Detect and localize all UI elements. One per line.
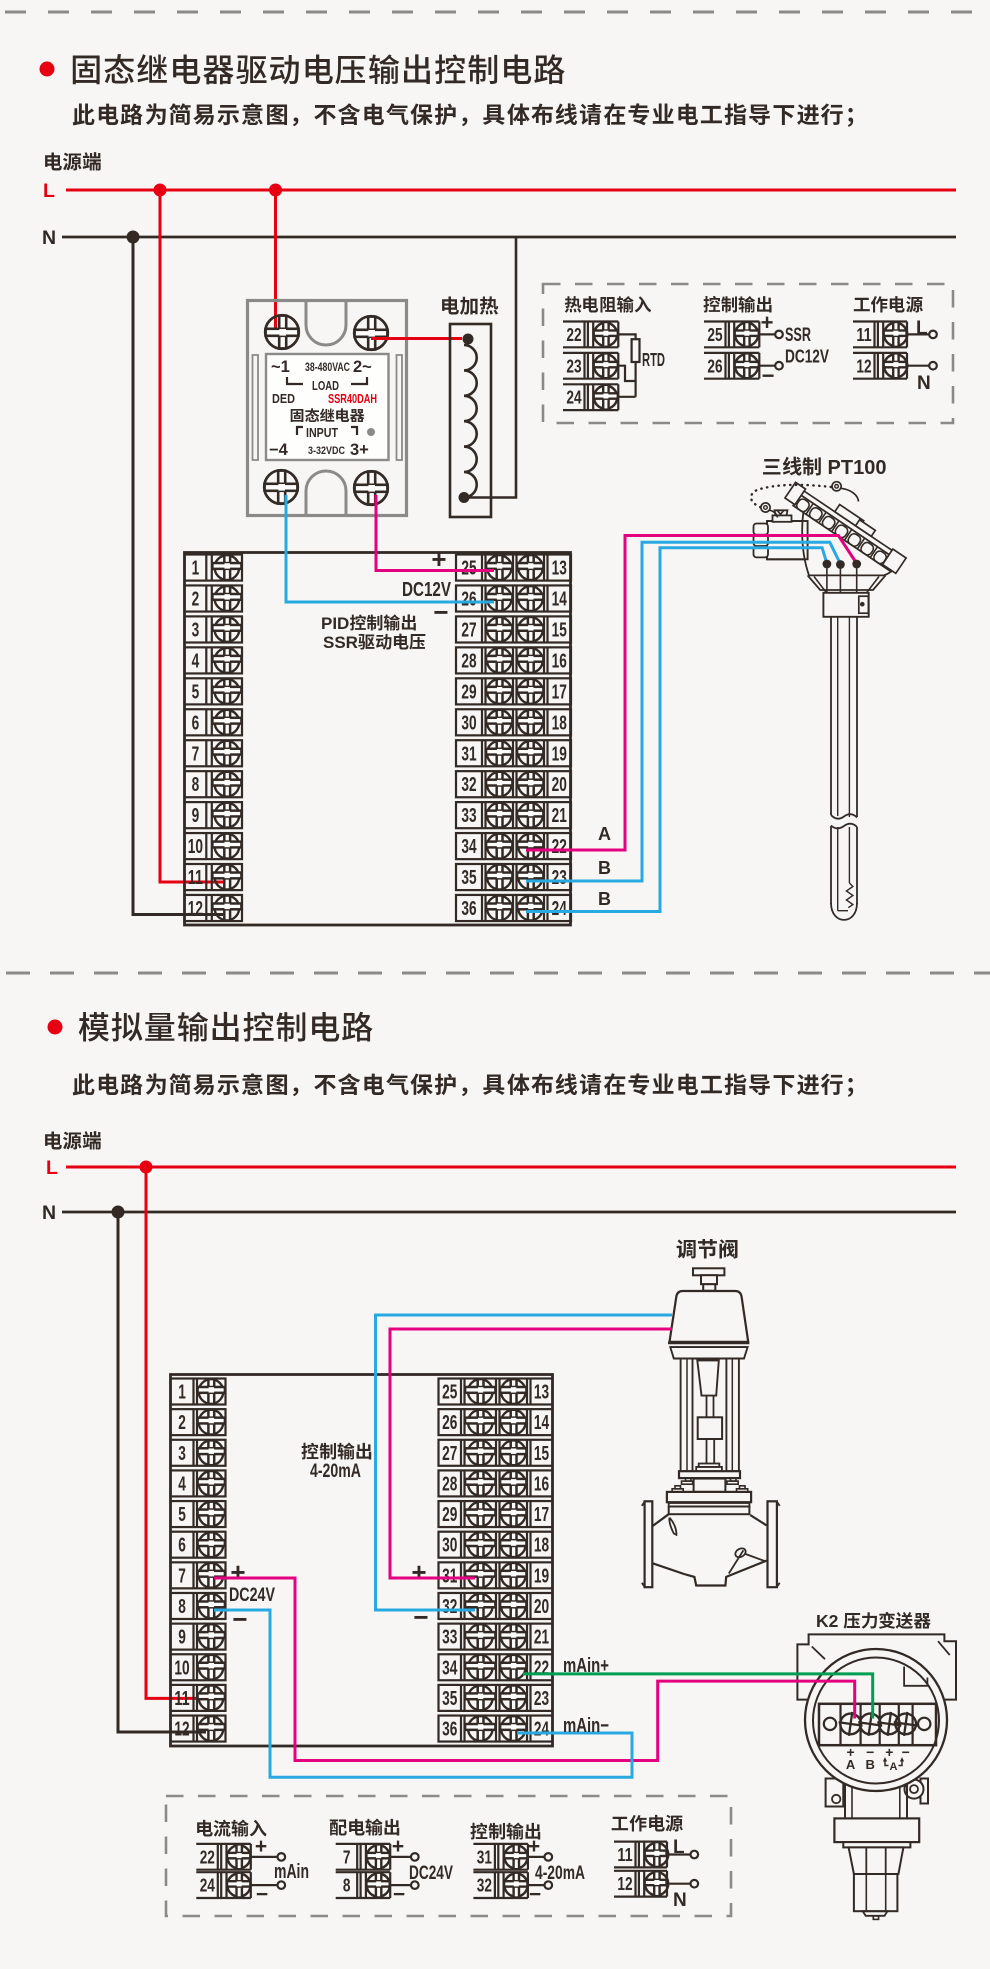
svg-text:K2 压力变送器: K2 压力变送器 xyxy=(816,1608,931,1633)
svg-text:固态继电器驱动电压输出控制电路: 固态继电器驱动电压输出控制电路 xyxy=(70,46,567,92)
svg-text:7: 7 xyxy=(178,1565,186,1587)
svg-text:18: 18 xyxy=(534,1535,549,1557)
svg-text:32: 32 xyxy=(442,1596,457,1618)
svg-text:RTD: RTD xyxy=(642,350,665,370)
svg-text:24: 24 xyxy=(566,388,581,408)
svg-text:三线制 PT100: 三线制 PT100 xyxy=(762,451,886,480)
svg-text:12: 12 xyxy=(188,898,203,920)
svg-text:+: + xyxy=(528,1835,540,1858)
svg-text:+: + xyxy=(255,1835,267,1858)
svg-text:35: 35 xyxy=(461,867,476,889)
svg-text:+: + xyxy=(392,1835,404,1858)
svg-text:23: 23 xyxy=(534,1688,549,1710)
svg-text:22: 22 xyxy=(534,1657,549,1679)
svg-text:7: 7 xyxy=(192,743,200,765)
svg-text:模拟量输出控制电路: 模拟量输出控制电路 xyxy=(78,1003,374,1049)
svg-text:12: 12 xyxy=(617,1874,632,1894)
svg-text:36: 36 xyxy=(442,1719,457,1741)
svg-text:DC12V: DC12V xyxy=(785,347,829,367)
svg-text:8: 8 xyxy=(178,1596,186,1618)
svg-text:B: B xyxy=(598,889,611,909)
svg-text:2: 2 xyxy=(178,1412,186,1434)
svg-text:mAin−: mAin− xyxy=(563,1715,609,1737)
svg-text:9: 9 xyxy=(192,805,200,827)
svg-text:27: 27 xyxy=(461,619,476,641)
svg-text:工作电源: 工作电源 xyxy=(611,1810,683,1836)
svg-text:8: 8 xyxy=(192,774,200,796)
svg-text:N: N xyxy=(42,1202,56,1224)
svg-text:15: 15 xyxy=(534,1443,549,1465)
svg-text:30: 30 xyxy=(461,712,476,734)
svg-text:11: 11 xyxy=(617,1845,632,1865)
svg-text:配电输出: 配电输出 xyxy=(329,1814,401,1840)
svg-text:1: 1 xyxy=(178,1382,186,1404)
svg-text:mAin: mAin xyxy=(274,1861,309,1883)
svg-text:+: + xyxy=(761,310,774,335)
svg-text:L: L xyxy=(46,1157,58,1179)
svg-text:+: + xyxy=(230,1557,245,1587)
svg-text:33: 33 xyxy=(442,1627,457,1649)
svg-text:2~: 2~ xyxy=(353,358,372,376)
svg-text:3: 3 xyxy=(178,1443,186,1465)
svg-text:4: 4 xyxy=(178,1473,186,1495)
svg-text:14: 14 xyxy=(534,1412,550,1434)
svg-text:29: 29 xyxy=(461,681,476,703)
svg-text:28: 28 xyxy=(461,650,476,672)
svg-text:6: 6 xyxy=(178,1535,186,1557)
svg-text:−: − xyxy=(413,1602,428,1632)
svg-text:mAin+: mAin+ xyxy=(563,1655,609,1677)
svg-text:24: 24 xyxy=(552,898,568,920)
svg-text:21: 21 xyxy=(552,805,567,827)
svg-text:1: 1 xyxy=(192,558,200,580)
svg-text:35: 35 xyxy=(442,1688,457,1710)
svg-text:N: N xyxy=(42,227,56,249)
svg-text:A: A xyxy=(890,1761,898,1773)
svg-text:26: 26 xyxy=(707,356,722,376)
svg-text:17: 17 xyxy=(552,681,567,703)
svg-text:11: 11 xyxy=(188,867,203,889)
svg-text:L: L xyxy=(916,318,928,339)
svg-text:SSR40DAH: SSR40DAH xyxy=(328,391,377,406)
svg-text:此电路为简易示意图，不含电气保护，具体布线请在专业电工指导下: 此电路为简易示意图，不含电气保护，具体布线请在专业电工指导下进行； xyxy=(72,1066,869,1100)
svg-text:24: 24 xyxy=(200,1876,215,1896)
svg-text:−: − xyxy=(256,1883,268,1906)
svg-text:22: 22 xyxy=(200,1847,215,1867)
svg-text:19: 19 xyxy=(534,1565,549,1587)
svg-text:电源端: 电源端 xyxy=(43,146,102,175)
svg-text:12: 12 xyxy=(856,356,871,376)
svg-text:31: 31 xyxy=(442,1565,457,1587)
svg-text:31: 31 xyxy=(477,1847,492,1867)
svg-text:38-480VAC: 38-480VAC xyxy=(305,362,350,374)
svg-text:25: 25 xyxy=(442,1382,457,1404)
svg-text:23: 23 xyxy=(552,867,567,889)
svg-text:13: 13 xyxy=(552,558,567,580)
svg-text:INPUT: INPUT xyxy=(306,426,338,440)
svg-text:此电路为简易示意图，不含电气保护，具体布线请在专业电工指导下: 此电路为简易示意图，不含电气保护，具体布线请在专业电工指导下进行； xyxy=(72,96,869,130)
svg-text:4-20mA: 4-20mA xyxy=(310,1461,361,1482)
svg-text:10: 10 xyxy=(188,836,203,858)
svg-text:电加热: 电加热 xyxy=(440,290,499,319)
svg-text:工作电源: 工作电源 xyxy=(853,292,923,317)
svg-text:25: 25 xyxy=(707,325,722,345)
svg-text:5: 5 xyxy=(178,1504,186,1526)
svg-text:3: 3 xyxy=(192,619,200,641)
svg-text:DED: DED xyxy=(272,392,295,406)
svg-text:34: 34 xyxy=(442,1657,458,1679)
svg-text:9: 9 xyxy=(178,1627,186,1649)
svg-text:11: 11 xyxy=(174,1688,189,1710)
svg-text:L: L xyxy=(43,180,55,202)
svg-text:25: 25 xyxy=(461,558,476,580)
svg-text:24: 24 xyxy=(534,1719,550,1741)
svg-text:26: 26 xyxy=(461,589,476,611)
svg-text:16: 16 xyxy=(534,1473,549,1495)
svg-text:DC24V: DC24V xyxy=(229,1585,275,1606)
svg-text:−: − xyxy=(762,363,775,388)
svg-text:30: 30 xyxy=(442,1535,457,1557)
svg-text:16: 16 xyxy=(552,650,567,672)
svg-text:22: 22 xyxy=(552,836,567,858)
svg-text:17: 17 xyxy=(534,1504,549,1526)
svg-text:5: 5 xyxy=(192,681,200,703)
svg-text:N: N xyxy=(917,373,931,394)
svg-text:36: 36 xyxy=(461,898,476,920)
svg-text:4: 4 xyxy=(192,650,200,672)
svg-text:−: − xyxy=(529,1883,541,1906)
svg-text:32: 32 xyxy=(477,1876,492,1896)
svg-text:19: 19 xyxy=(552,743,567,765)
svg-text:固态继电器: 固态继电器 xyxy=(289,405,365,426)
svg-text:29: 29 xyxy=(442,1504,457,1526)
svg-text:18: 18 xyxy=(552,712,567,734)
svg-text:27: 27 xyxy=(442,1443,457,1465)
svg-text:20: 20 xyxy=(534,1596,549,1618)
svg-text:6: 6 xyxy=(192,712,200,734)
svg-text:A: A xyxy=(598,824,611,844)
svg-text:电源端: 电源端 xyxy=(43,1125,102,1154)
svg-text:−: − xyxy=(902,1744,910,1760)
svg-text:2: 2 xyxy=(192,589,200,611)
svg-text:31: 31 xyxy=(461,743,476,765)
svg-text:N: N xyxy=(673,1890,687,1911)
svg-text:22: 22 xyxy=(566,325,581,345)
svg-text:11: 11 xyxy=(856,325,871,345)
svg-text:14: 14 xyxy=(552,589,568,611)
svg-text:4-20mA: 4-20mA xyxy=(535,1863,585,1884)
svg-text:3+: 3+ xyxy=(350,441,369,459)
svg-text:34: 34 xyxy=(461,836,477,858)
svg-text:12: 12 xyxy=(174,1719,189,1741)
svg-text:B: B xyxy=(866,1757,875,1772)
svg-text:13: 13 xyxy=(534,1382,549,1404)
svg-text:L: L xyxy=(673,1837,685,1858)
svg-text:~1: ~1 xyxy=(271,358,290,376)
svg-text:调节阀: 调节阀 xyxy=(676,1234,739,1264)
svg-text:32: 32 xyxy=(461,774,476,796)
svg-text:28: 28 xyxy=(442,1473,457,1495)
svg-text:10: 10 xyxy=(174,1657,189,1679)
svg-text:−: − xyxy=(393,1883,405,1906)
svg-text:A: A xyxy=(846,1757,856,1772)
svg-text:26: 26 xyxy=(442,1412,457,1434)
svg-text:21: 21 xyxy=(534,1627,549,1649)
svg-text:15: 15 xyxy=(552,619,567,641)
svg-text:SSR驱动电压: SSR驱动电压 xyxy=(323,628,426,653)
svg-text:−4: −4 xyxy=(269,441,289,459)
svg-text:33: 33 xyxy=(461,805,476,827)
svg-text:B: B xyxy=(598,858,611,878)
svg-text:+: + xyxy=(885,1744,893,1760)
svg-text:23: 23 xyxy=(566,356,581,376)
svg-text:+: + xyxy=(411,1557,426,1587)
svg-text:SSR: SSR xyxy=(785,325,811,346)
svg-text:7: 7 xyxy=(343,1847,351,1867)
svg-text:8: 8 xyxy=(343,1876,351,1896)
svg-text:3-32VDC: 3-32VDC xyxy=(308,445,345,457)
svg-text:热电阻输入: 热电阻输入 xyxy=(564,292,652,317)
svg-text:20: 20 xyxy=(552,774,567,796)
